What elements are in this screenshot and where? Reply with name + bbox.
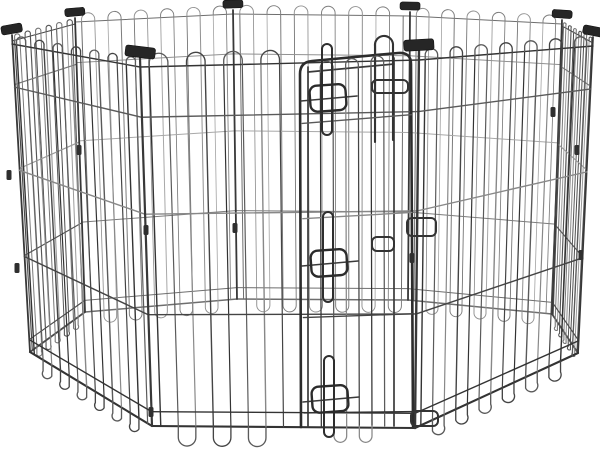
corner-clips [1,0,600,59]
wire-joint-clip [144,225,149,235]
wire-joint-clip [551,107,556,117]
corner-clip [552,9,573,18]
corner-clip [1,23,23,36]
wire-joint-clip [575,145,580,155]
wire-joint-clip [15,263,20,273]
corner-clip [400,2,420,10]
corner-clip [582,25,600,38]
wire-joint-clip [149,407,154,417]
corner-clip [65,7,86,17]
wire-joint-clip [410,253,415,263]
exercise-pen-illustration [0,0,600,460]
wire-joint-clip [77,145,82,155]
wire-joint-clip [579,250,584,260]
corner-clip [404,39,435,52]
pen-panel-front-door [140,50,419,446]
corner-clip [223,0,243,8]
wire-joint-clip [233,223,238,233]
pen-panel-right-side [552,23,593,357]
door-latch-3 [303,356,359,437]
wire-joint-clip [7,170,12,180]
product-photo-canvas [0,0,600,460]
